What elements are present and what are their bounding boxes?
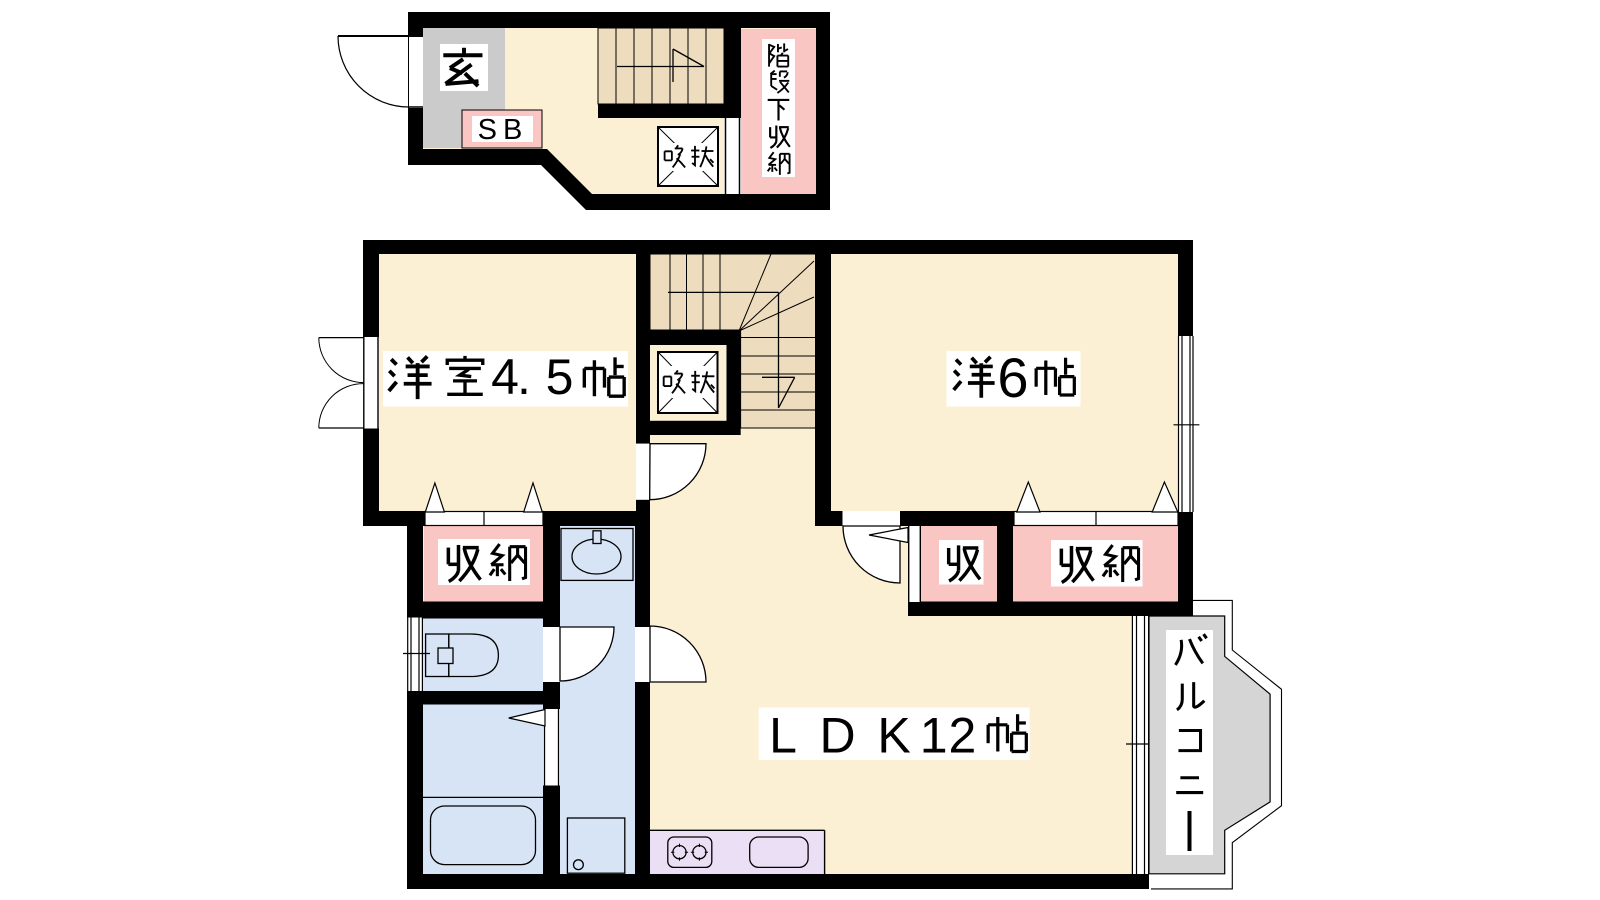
svg-text:4: 4: [491, 349, 519, 405]
svg-text:SB: SB: [478, 114, 529, 146]
svg-text:.: .: [517, 349, 531, 405]
svg-text:K: K: [877, 708, 910, 764]
svg-text:5: 5: [546, 349, 574, 405]
svg-text:D: D: [819, 708, 855, 764]
svg-text:12: 12: [920, 708, 978, 764]
svg-text:L: L: [769, 708, 797, 764]
svg-text:6: 6: [997, 346, 1028, 409]
